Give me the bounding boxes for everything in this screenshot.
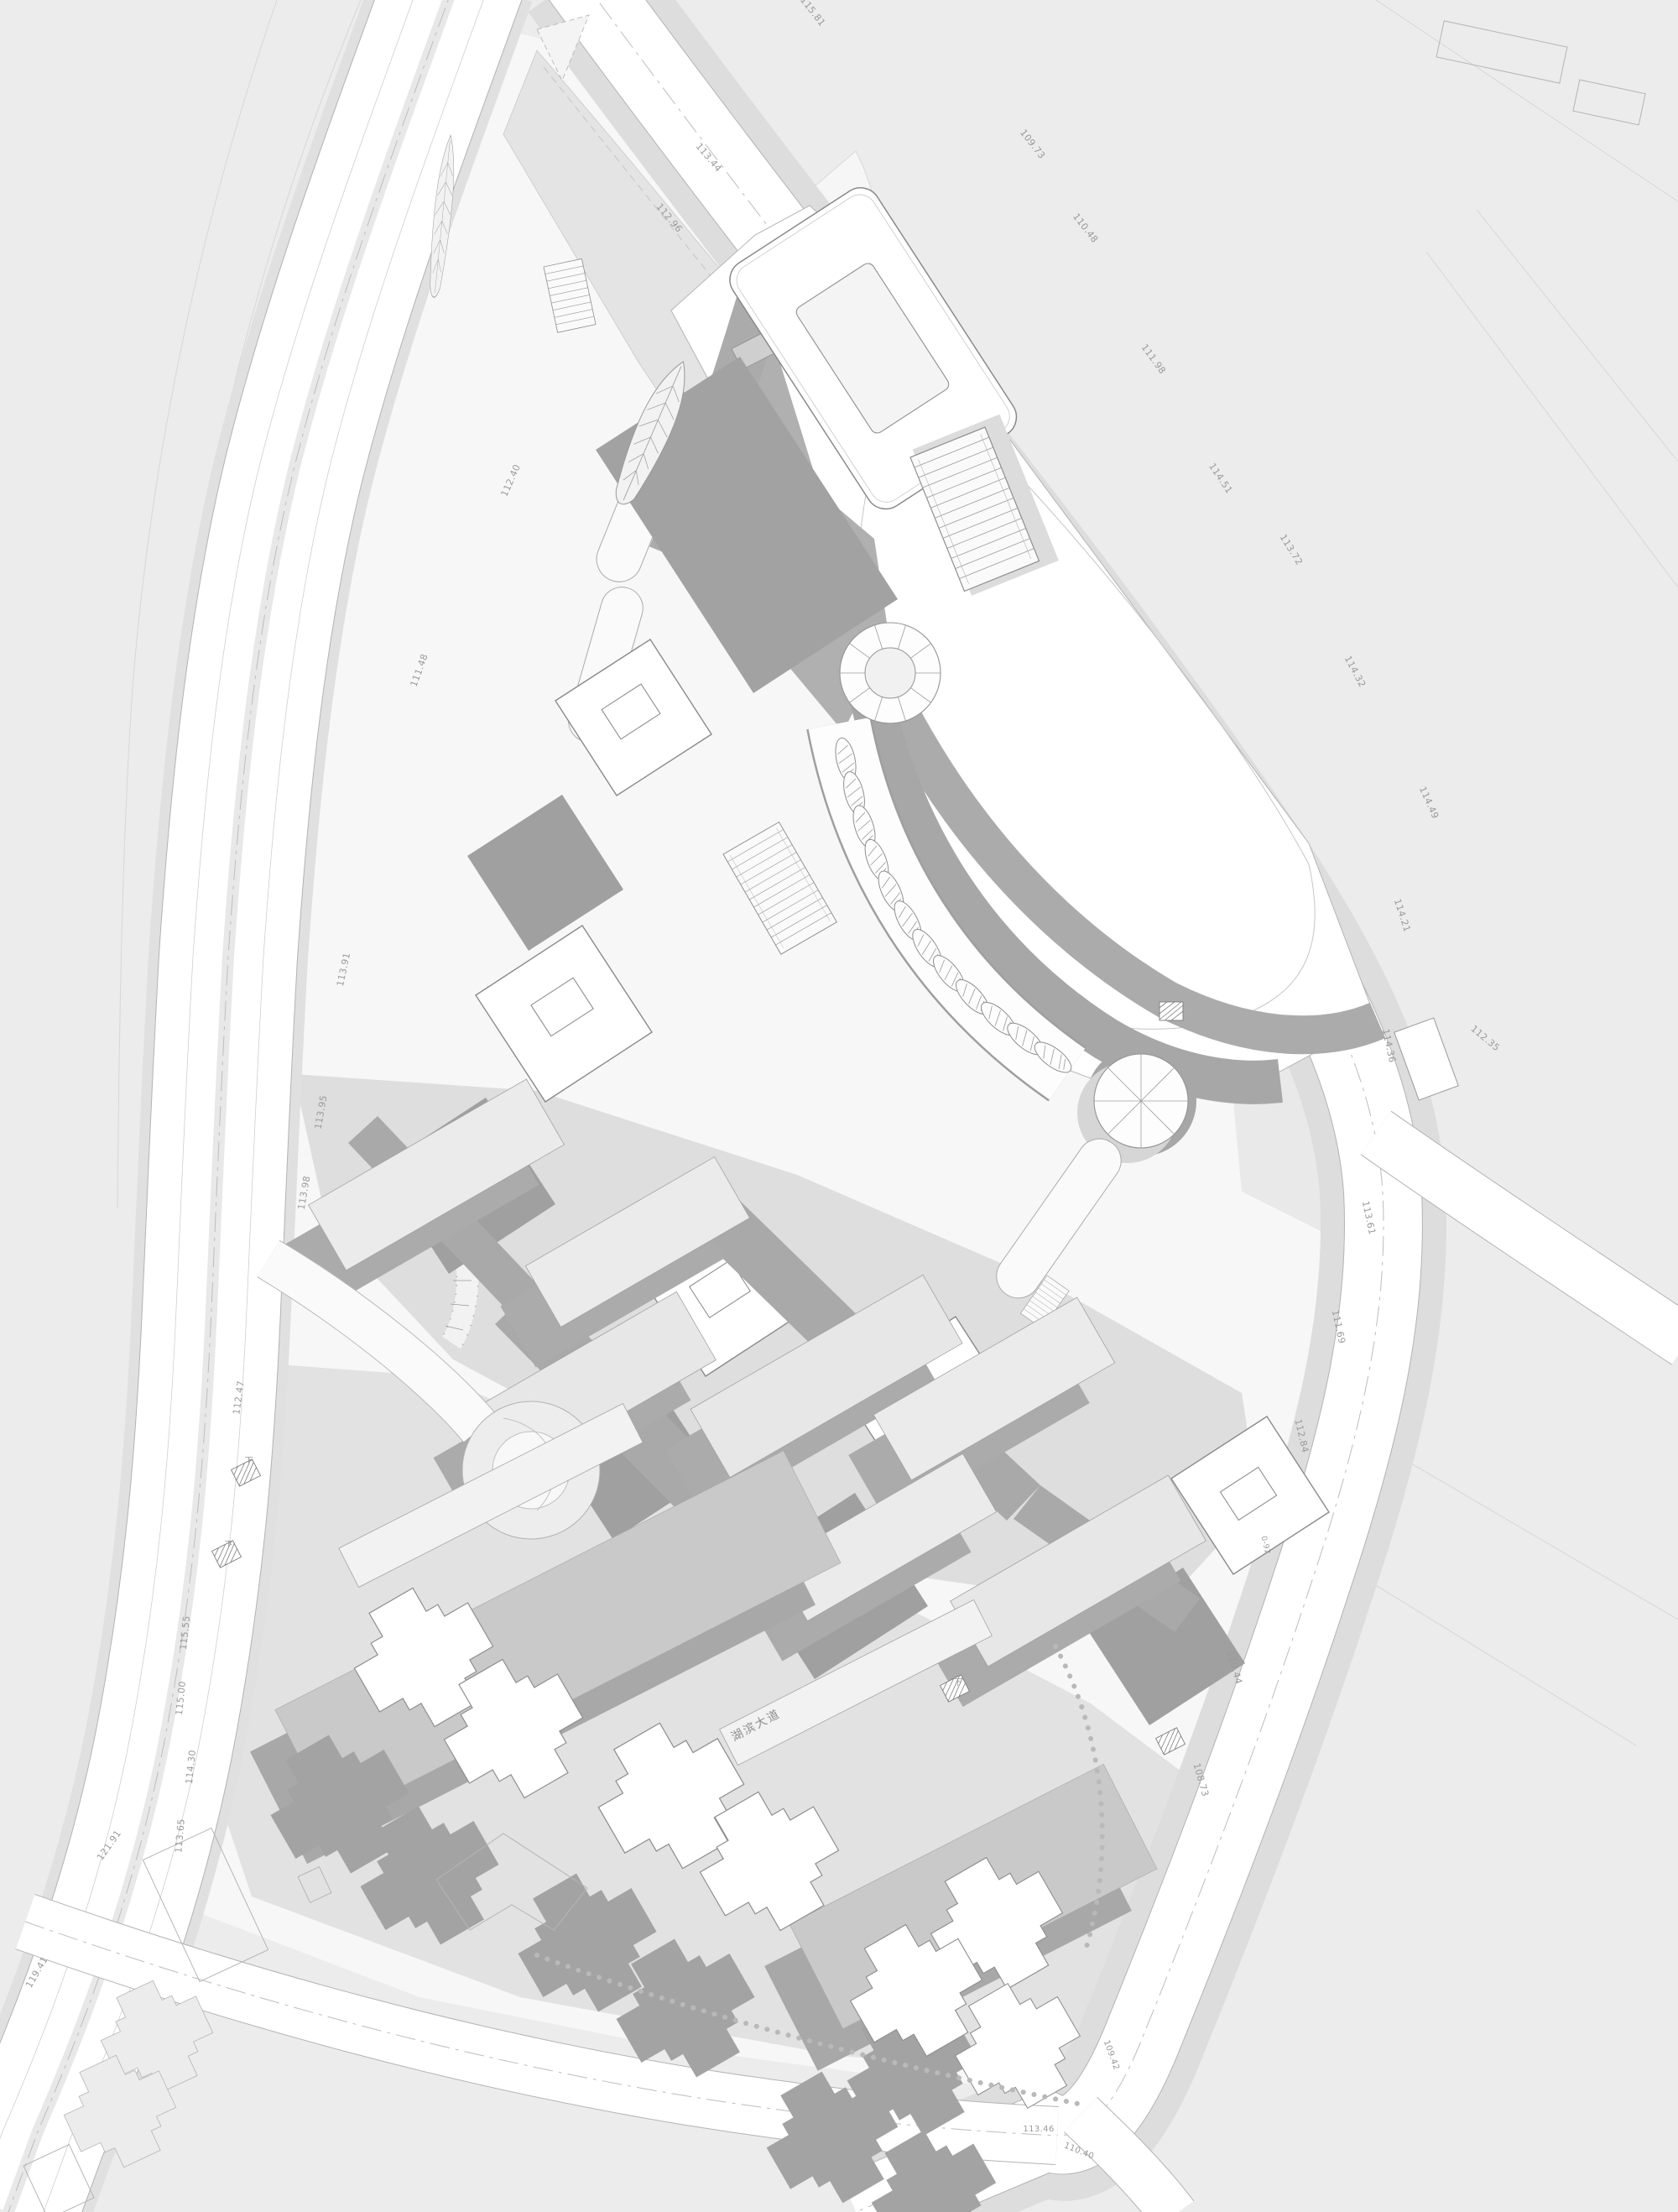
radial-plaza [1094, 1054, 1188, 1148]
ramp-down-label: 下 [225, 1541, 233, 1550]
site-plan-canvas: 115.81113.44112.96109.73110.48111.98114.… [0, 0, 1678, 2212]
site-plan-svg: 115.81113.44112.96109.73110.48111.98114.… [0, 0, 1678, 2212]
ramp-down-label: 下 [245, 1457, 253, 1466]
spot-elevation-label: 113.46 [1023, 2125, 1054, 2134]
plaza-stair-kiosk [1159, 1002, 1183, 1020]
ring-plaza [840, 623, 941, 723]
ramp-down-label: 下 [954, 1678, 962, 1688]
